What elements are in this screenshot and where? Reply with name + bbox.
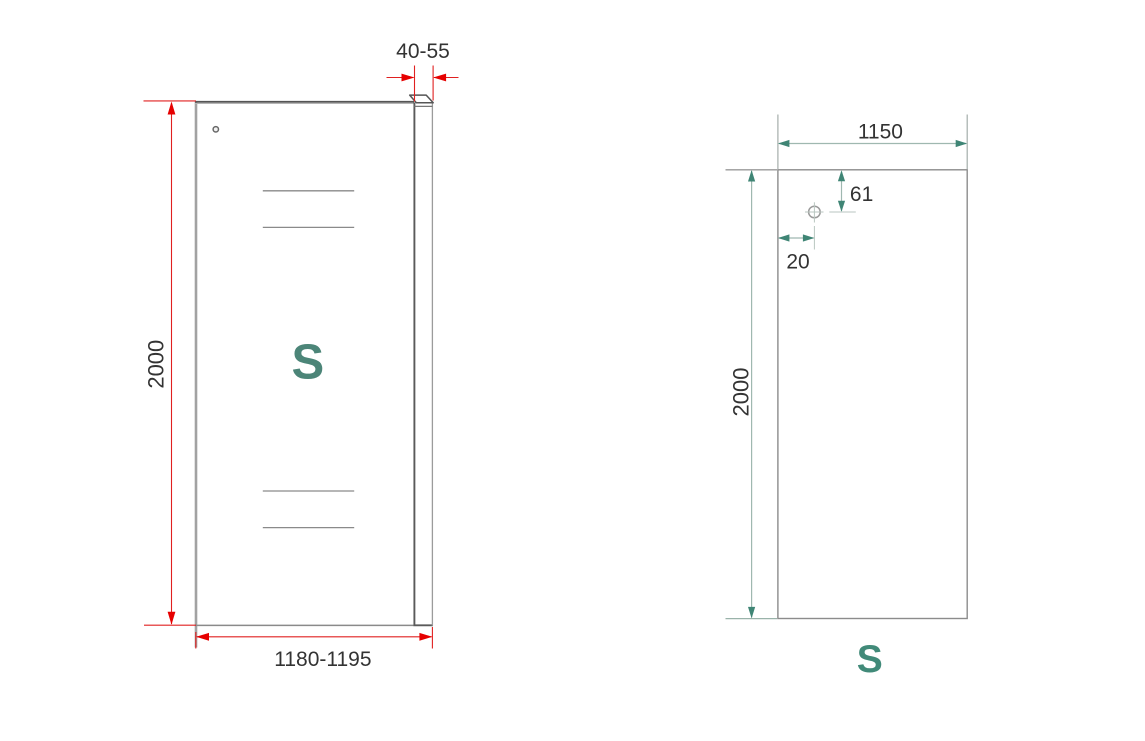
svg-text:S: S [857, 638, 883, 681]
svg-text:1150: 1150 [858, 121, 903, 144]
svg-text:40-55: 40-55 [396, 40, 450, 63]
svg-text:1180-1195: 1180-1195 [274, 648, 371, 671]
svg-text:2000: 2000 [729, 368, 754, 417]
svg-text:2000: 2000 [144, 340, 169, 389]
svg-text:20: 20 [786, 251, 809, 274]
svg-text:S: S [291, 336, 324, 390]
svg-text:61: 61 [850, 183, 873, 206]
